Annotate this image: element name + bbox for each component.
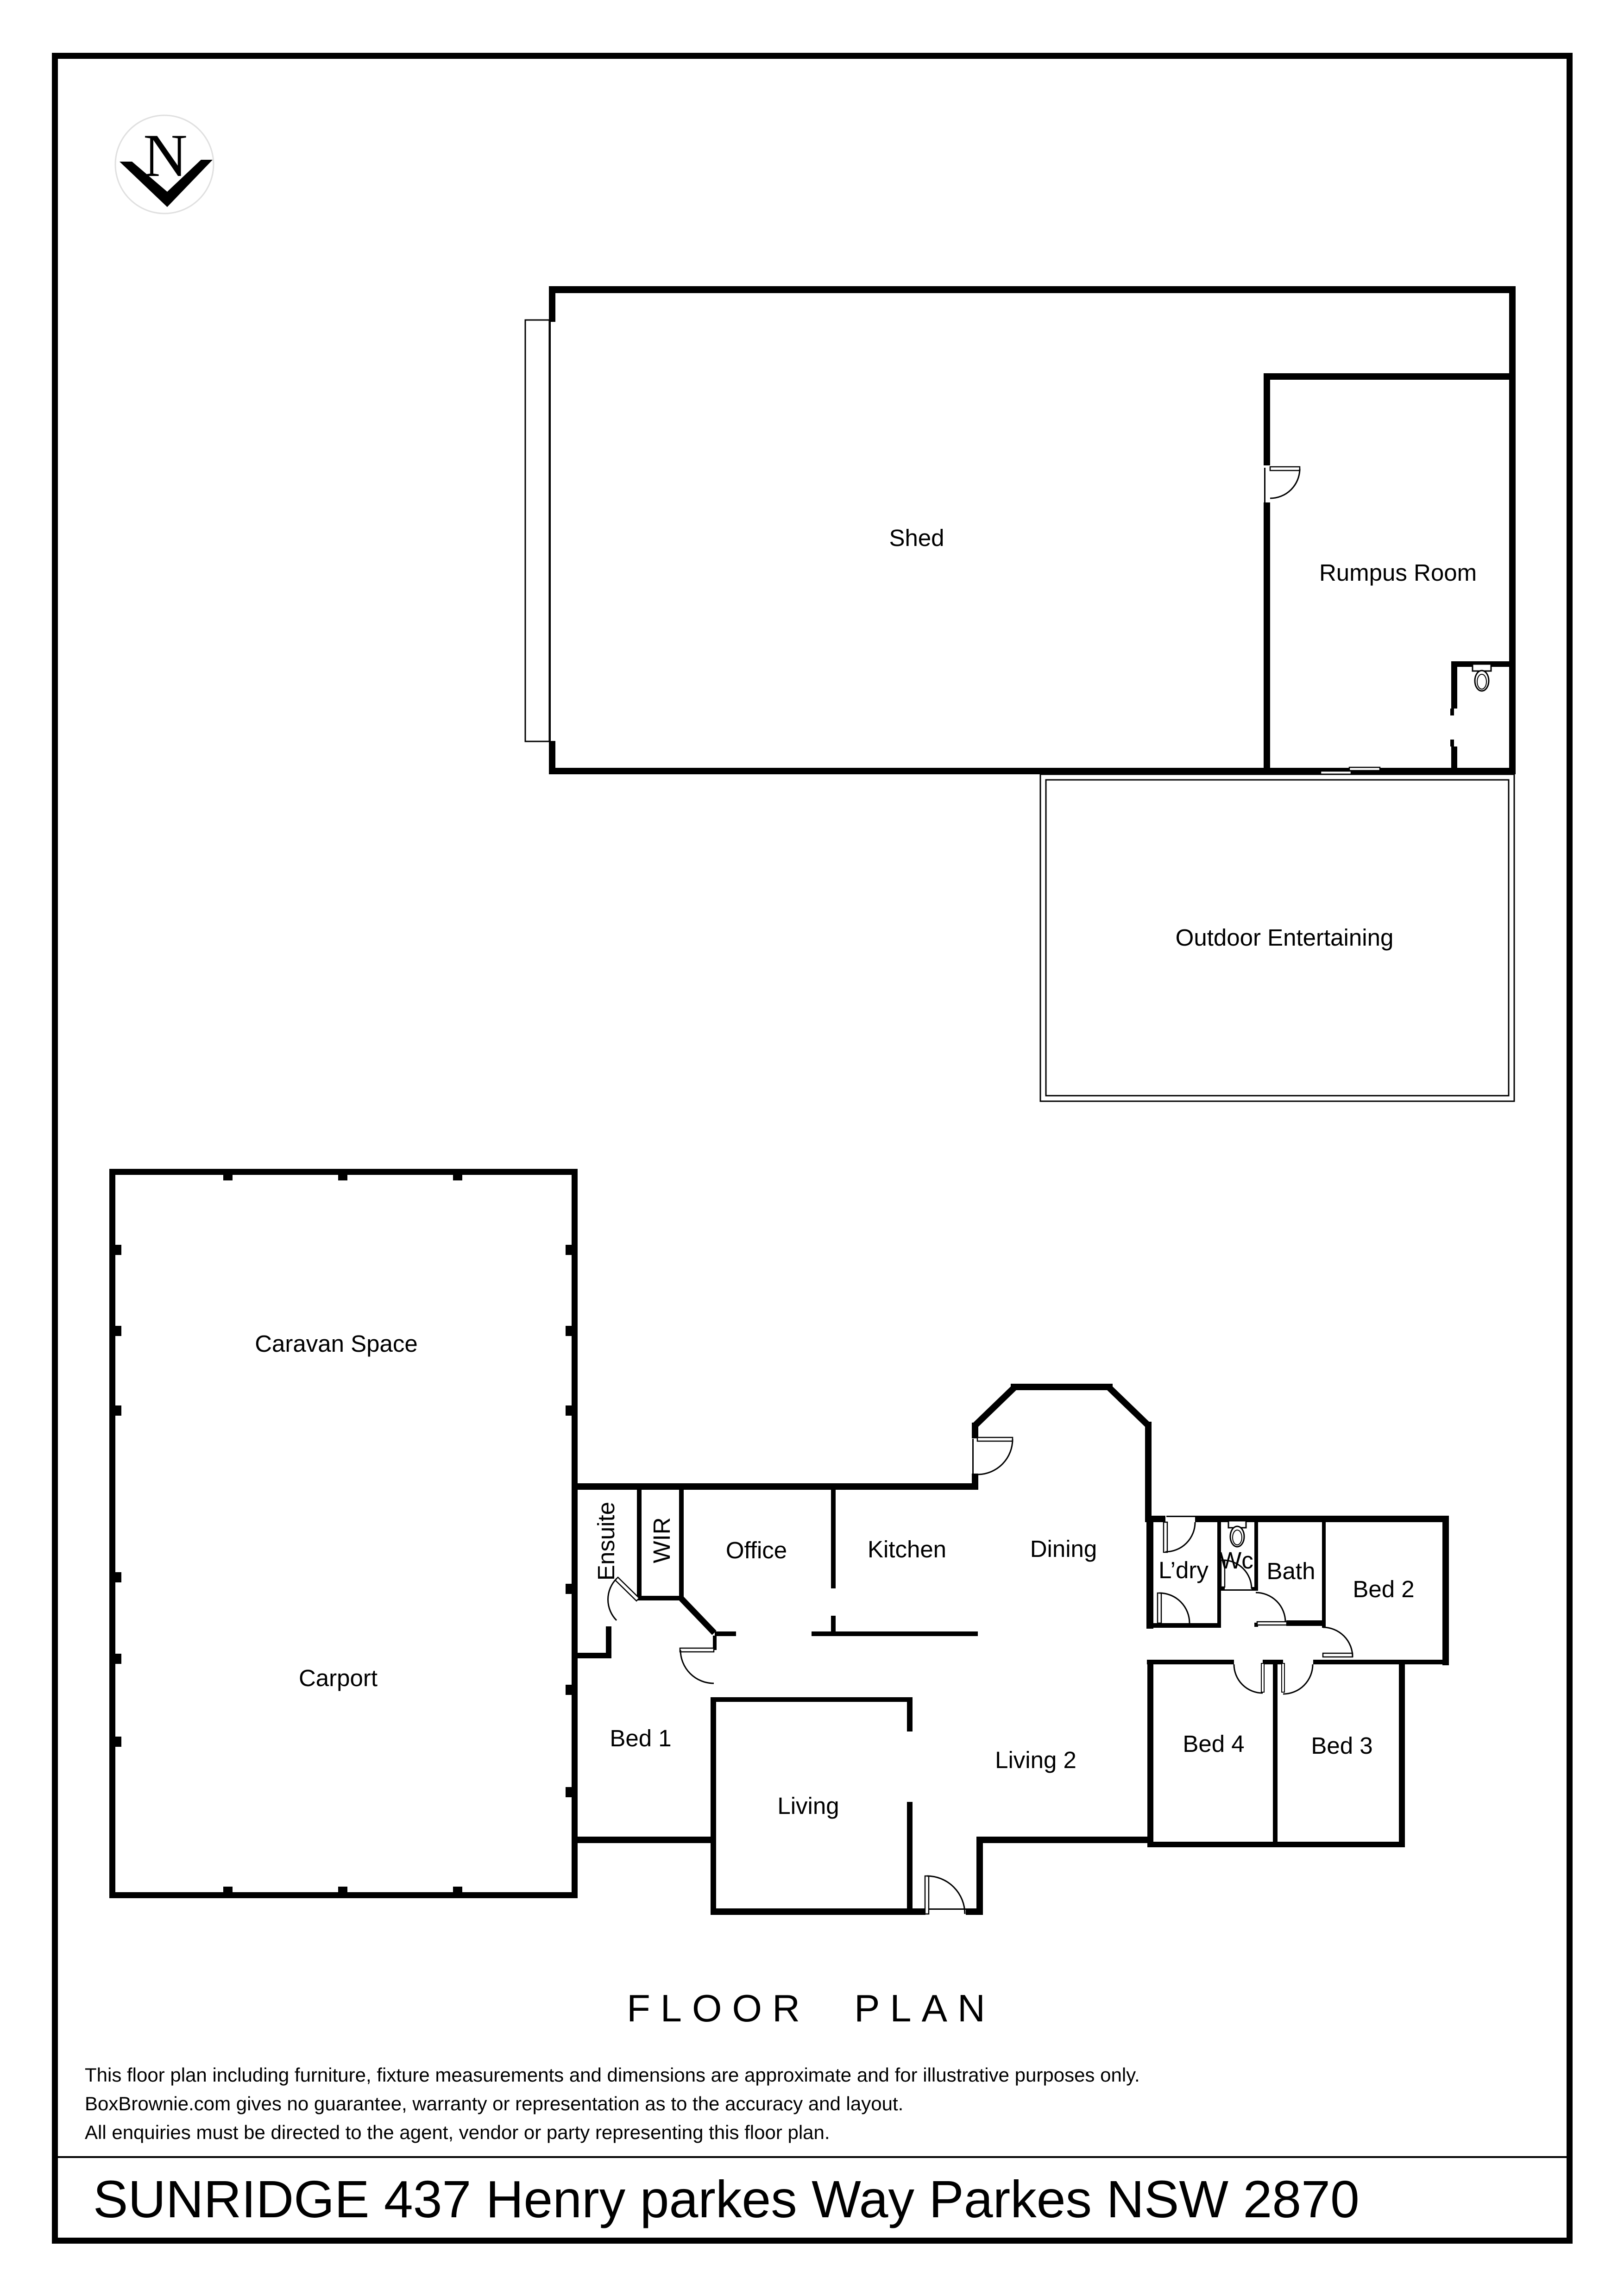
svg-text:Living: Living xyxy=(777,1793,839,1819)
svg-text:Bed 4: Bed 4 xyxy=(1183,1731,1244,1757)
svg-text:This floor plan including furn: This floor plan including furniture, fix… xyxy=(85,2064,1140,2086)
svg-text:Bed 3: Bed 3 xyxy=(1311,1732,1372,1759)
svg-text:Ensuite: Ensuite xyxy=(593,1502,619,1581)
svg-text:BoxBrownie.com gives no guaran: BoxBrownie.com gives no guarantee, warra… xyxy=(85,2093,903,2114)
svg-text:Wc: Wc xyxy=(1219,1547,1253,1574)
svg-text:WIR: WIR xyxy=(648,1517,675,1563)
svg-text:Bed 1: Bed 1 xyxy=(610,1725,671,1751)
svg-text:Rumpus Room: Rumpus Room xyxy=(1319,559,1477,586)
svg-text:L’dry: L’dry xyxy=(1158,1557,1209,1583)
svg-text:Living 2: Living 2 xyxy=(995,1747,1076,1773)
svg-text:SUNRIDGE 437 Henry parkes Way: SUNRIDGE 437 Henry parkes Way Parkes NSW… xyxy=(93,2170,1360,2228)
svg-text:Caravan Space: Caravan Space xyxy=(255,1330,418,1357)
svg-text:Shed: Shed xyxy=(889,525,944,551)
svg-text:Kitchen: Kitchen xyxy=(868,1536,946,1562)
svg-text:Office: Office xyxy=(726,1537,787,1563)
svg-text:Carport: Carport xyxy=(299,1665,378,1691)
svg-text:Outdoor Entertaining: Outdoor Entertaining xyxy=(1176,924,1394,951)
svg-text:FLOOR PLAN: FLOOR PLAN xyxy=(627,1987,995,2030)
svg-text:Dining: Dining xyxy=(1030,1536,1097,1562)
svg-text:Bath: Bath xyxy=(1267,1558,1316,1584)
svg-text:All enquiries must be directed: All enquiries must be directed to the ag… xyxy=(85,2121,830,2143)
svg-text:Bed 2: Bed 2 xyxy=(1353,1576,1414,1602)
